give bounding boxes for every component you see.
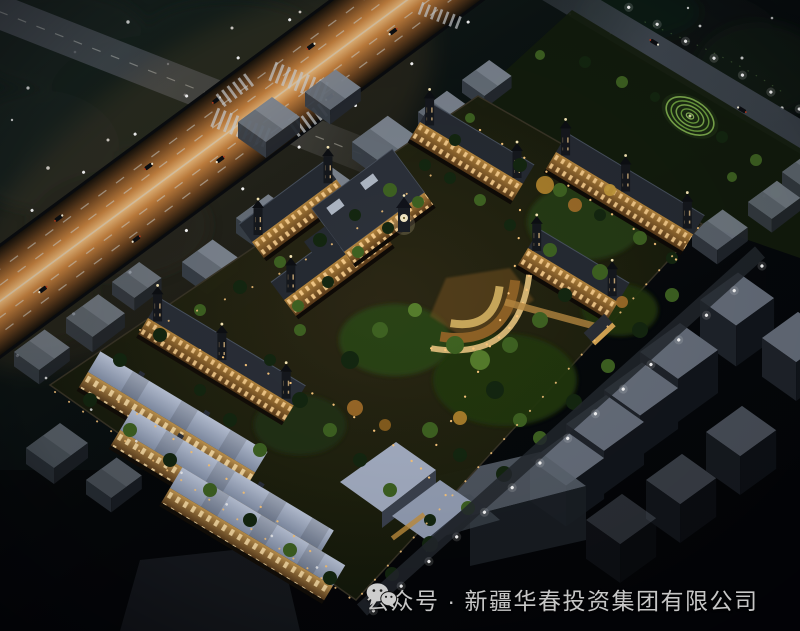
watermark-caption: 公众号 · 新疆华春投资集团有限公司 <box>366 582 758 616</box>
caption-text: 公众号 · 新疆华春投资集团有限公司 <box>366 582 758 616</box>
wechat-icon <box>366 582 397 609</box>
scene-canvas <box>0 0 800 631</box>
aerial-night-rendering: 公众号 · 新疆华春投资集团有限公司 <box>0 0 800 631</box>
vignette <box>0 0 800 631</box>
